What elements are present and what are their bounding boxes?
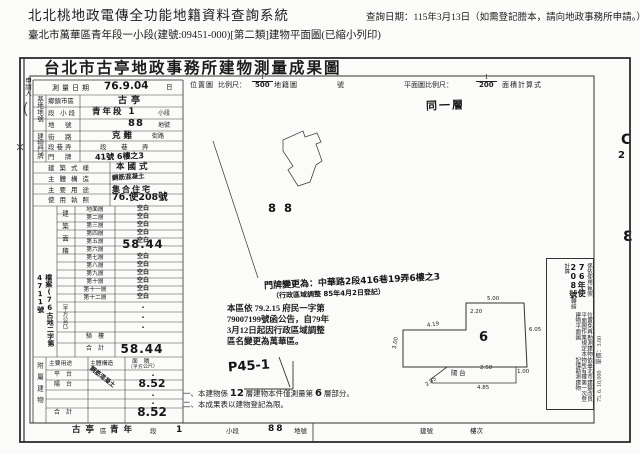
addr-row-suffix: 街路: [152, 134, 164, 141]
map-number-label: 號: [337, 81, 344, 89]
remarks-license-number: 76年使208號: [569, 263, 586, 298]
attr-row-label: 使用執照: [48, 197, 94, 204]
plan-room-number: 6: [479, 331, 488, 346]
floor-label: 第十層: [77, 279, 113, 286]
plan-dim-balcony-right: 1.00: [517, 369, 529, 375]
floor-label: 第三層: [77, 223, 113, 230]
floor-label: 第十一層: [77, 287, 113, 294]
survey-date-unit: 日: [166, 84, 173, 91]
plan-dim-top: 5.00: [487, 296, 499, 302]
address-group-label: 建物門牌: [35, 133, 42, 163]
plan-dim-notch: 2.20: [470, 309, 482, 315]
note1-mid: 層建物本件僅測量第: [246, 389, 314, 398]
addr-row-value: 41號 6樓之3: [95, 151, 144, 162]
site-row-label: 地 號: [48, 122, 74, 129]
plan-dim-upper-left: 4.19: [427, 321, 440, 329]
same-floor-note: 同一層: [426, 99, 465, 113]
plan-scale-den: 200: [476, 81, 497, 89]
district-change-stamp: 本區依 79.2.15 府民一字第: [227, 304, 325, 314]
empty-area-dot: ·: [118, 313, 168, 322]
floor-label: 第六層: [77, 247, 113, 254]
document-title: 台北市古亭地政事務所建物測量成果圖: [44, 60, 342, 78]
note-line-1: 一、本建物係 12 層建物本件僅測量第 6 層部分。: [183, 388, 354, 400]
annex-row-use: 陽 台: [54, 382, 72, 389]
addr-row-label: 街 路: [48, 134, 74, 141]
strip-floor-label: 樓次: [470, 428, 483, 435]
site-row-value: 88: [128, 118, 144, 130]
file-number-note: 檔案(76古地二字第4711號: [34, 274, 56, 371]
strip-district-label: 區: [100, 428, 107, 435]
floor-label: 第十二層: [77, 295, 113, 302]
strip-parcel-value: 88: [268, 424, 285, 434]
annex-row-use: 平 台: [54, 372, 72, 379]
remarks-column-2: 位置免再勘測建物平面圖作業規定本建物平面圖: [564, 312, 592, 358]
floor-label: 第四層: [77, 231, 113, 238]
attr-row-value: 鋼筋混凝土: [112, 173, 145, 183]
addr-row-label: 門 牌: [48, 154, 74, 161]
floor-label: 第九層: [77, 271, 113, 278]
annex-total-value: 8.52: [126, 406, 178, 420]
margin-mark: 2: [618, 150, 625, 162]
district-change-stamp: 區名變更為萬華區。: [227, 337, 304, 347]
plan-dim-left: 3.00: [392, 337, 400, 350]
plan-scale-num: 1: [485, 74, 489, 81]
addr-row-label: 段巷弄: [48, 144, 74, 151]
floor-area-unit-label: （平方公尺）: [61, 300, 67, 356]
location-scale-den: 500: [252, 81, 273, 89]
district-change-stamp: 3月12日起因行政區域調整: [227, 326, 325, 336]
district-change-stamp: 79007199號函公告，自79年: [227, 315, 329, 325]
attr-row-label: 建築式樣: [48, 165, 94, 172]
margin-mark: C: [621, 132, 631, 148]
floor-value: 空白: [118, 214, 168, 221]
site-row-suffix: 小段: [158, 111, 170, 118]
floor-value: 空白: [118, 262, 168, 269]
floor-value-sixth: 58.44: [116, 238, 170, 251]
location-map-label: 位置圖: [190, 81, 214, 89]
note1-pre: 一、本建物係: [183, 389, 228, 398]
survey-date-label: 測量日期: [52, 84, 92, 92]
note1-floor-count: 12: [230, 388, 244, 399]
site-row-label: 段 小段: [48, 110, 77, 117]
strip-subsection-value: 1: [176, 425, 182, 435]
annex-group-label: 附屬建物: [35, 362, 42, 420]
floor-label: 第七層: [77, 255, 113, 262]
site-row-label: 鄉鎮市區: [48, 98, 74, 105]
remarks-box: 依臺北市建築改良物所有權第一次登記僅勘測建物 位置免再勘測建物平面圖作業規定本建…: [546, 258, 594, 410]
strip-building-label: 建號: [420, 428, 433, 435]
floor-total-value: 58.44: [114, 343, 170, 357]
form-print-note: 75. 6. 10,000 單價：3.60: [597, 254, 604, 402]
empty-area-dot: ·: [118, 303, 168, 312]
site-row-suffix: 地號: [158, 123, 170, 130]
plan-dim-balcony-bottom: 4.85: [477, 385, 489, 391]
query-date: 查詢日期：115年3月13日（如需登記謄本，請向地政事務所申請。）: [366, 13, 640, 24]
site-group-label: 基地地號: [35, 96, 42, 132]
strip-section-label: 段: [150, 428, 157, 435]
attr-row-value: 76.使208號: [112, 193, 168, 204]
attr-row-value: 本國式: [116, 163, 151, 173]
remarks-column-1: 依臺北市建築改良物所有權第一次登記僅勘測建物: [564, 357, 592, 405]
applicant-label: 申請人: [23, 77, 30, 107]
floor-label: 第八層: [77, 263, 113, 270]
floor-label: 地面層: [77, 207, 113, 214]
page-mark: P45-1: [228, 359, 271, 377]
site-parcel-number: 8 8: [268, 202, 294, 215]
addr-row-value: 克難: [112, 132, 135, 142]
annex-row-structure: 鋼筋混凝土: [88, 366, 116, 390]
floor-value: 空白: [118, 254, 168, 261]
floor-value: 空白: [118, 294, 168, 301]
attr-row-label: 主體構造: [48, 176, 94, 183]
site-row-value: 古亭: [118, 96, 144, 106]
floor-value: 空白: [118, 270, 168, 277]
plan-dim-right: 6.05: [529, 327, 541, 333]
margin-mark: Ɛ: [623, 229, 633, 245]
survey-date-value: 76.9.04: [104, 80, 149, 93]
land-registry-query-page: 北北桃地政電傳全功能地籍資料查詢系統 臺北市萬華區青年段一小段(建號:09451…: [0, 0, 640, 454]
floor-value: 空白: [118, 222, 168, 229]
remarks-column-3: 係依使用執照76年使208號轉繪計算: [563, 263, 592, 312]
location-scale-num: 1: [261, 74, 265, 81]
annex-row-area: 8.52: [126, 378, 178, 391]
system-title: 北北桃地政電傳全功能地籍資料查詢系統: [28, 8, 289, 24]
site-row-value: 青年段 1: [92, 108, 136, 118]
floor-area-group-label: 建築面積: [60, 210, 67, 296]
floor-value: 空白: [118, 286, 168, 293]
floor-value: 空白: [118, 230, 168, 237]
floor-value: 空白: [118, 206, 168, 213]
note-line-2: 二、本成果表以建物登記為限。: [183, 401, 288, 410]
floor-value: 空白: [118, 278, 168, 285]
scale-ratio-label: 比例尺：: [218, 81, 246, 89]
location-scale-fraction: 1 500: [252, 74, 273, 89]
strip-section-value: 青年: [110, 426, 137, 436]
strip-subsection-label: 小段: [226, 428, 239, 435]
plan-scale-label: 平面圖比例尺：: [404, 81, 453, 89]
strip-district-value: 古亭: [72, 426, 99, 436]
note1-post: 層部分。: [324, 389, 354, 398]
floor-label: 第五層: [77, 239, 113, 246]
strip-parcel-label: 地號: [294, 428, 307, 435]
note1-floor-surveyed: 6: [315, 388, 322, 399]
addr-row-value: 段 巷 弄: [100, 144, 153, 151]
plan-dim-balcony-left: 2.05: [424, 376, 438, 388]
plan-balcony-label: 陽 台: [451, 370, 466, 377]
floor-total-label: 合 計: [77, 346, 113, 353]
plan-dim-balcony-top: 2.58: [480, 365, 492, 371]
attr-row-label: 主要用途: [48, 187, 94, 194]
query-subtitle: 臺北市萬華區青年段一小段(建號:09451-000)[第二類]建物平面圖(已縮小…: [28, 30, 381, 42]
empty-area-dot: ·: [118, 323, 168, 332]
arcade-label: 騎 樓: [77, 334, 113, 341]
area-calc-label: 面積計算式: [502, 81, 542, 89]
remarks-license-pre: 係依使用執照: [586, 263, 592, 297]
plan-scale-fraction: 1 200: [476, 74, 497, 89]
annex-total-label: 合 計: [54, 410, 72, 417]
cadastre-map-label: 地籍圖: [274, 81, 298, 89]
floor-label: 第二層: [77, 215, 113, 222]
